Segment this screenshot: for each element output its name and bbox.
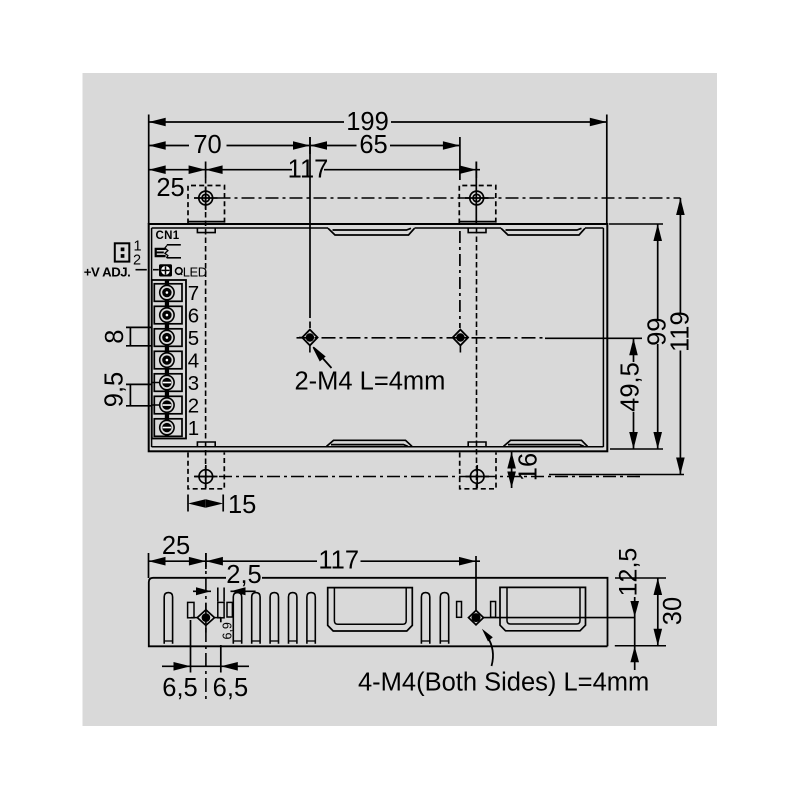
svg-text:2: 2 [133,253,141,269]
svg-text:6,9: 6,9 [220,622,234,639]
svg-text:2,5: 2,5 [226,561,261,589]
svg-text:9,5: 9,5 [101,372,129,407]
svg-text:4: 4 [188,349,199,372]
svg-text:70: 70 [193,131,221,159]
svg-text:+V ADJ.: +V ADJ. [84,264,131,279]
svg-text:6,5: 6,5 [213,674,248,702]
svg-text:15: 15 [228,491,256,519]
svg-text:LED: LED [183,265,207,280]
svg-text:6: 6 [188,304,199,327]
svg-text:6,5: 6,5 [162,674,197,702]
svg-text:1: 1 [188,417,199,440]
svg-text:30: 30 [659,597,687,625]
svg-text:65: 65 [359,131,387,159]
svg-text:2: 2 [188,394,199,417]
svg-text:117: 117 [318,547,359,575]
svg-text:3: 3 [188,372,199,395]
svg-text:CN1: CN1 [156,230,180,242]
svg-text:25: 25 [156,174,184,202]
svg-text:5: 5 [188,327,199,350]
svg-text:4-M4(Both Sides) L=4mm: 4-M4(Both Sides) L=4mm [358,669,649,697]
svg-text:12,5: 12,5 [615,548,643,597]
svg-text:2-M4 L=4mm: 2-M4 L=4mm [295,368,446,396]
svg-text:8: 8 [101,330,129,344]
svg-text:49,5: 49,5 [617,362,645,412]
svg-text:25: 25 [162,532,190,560]
svg-text:119: 119 [667,311,695,352]
svg-text:117: 117 [288,156,329,184]
svg-text:7: 7 [188,282,199,305]
